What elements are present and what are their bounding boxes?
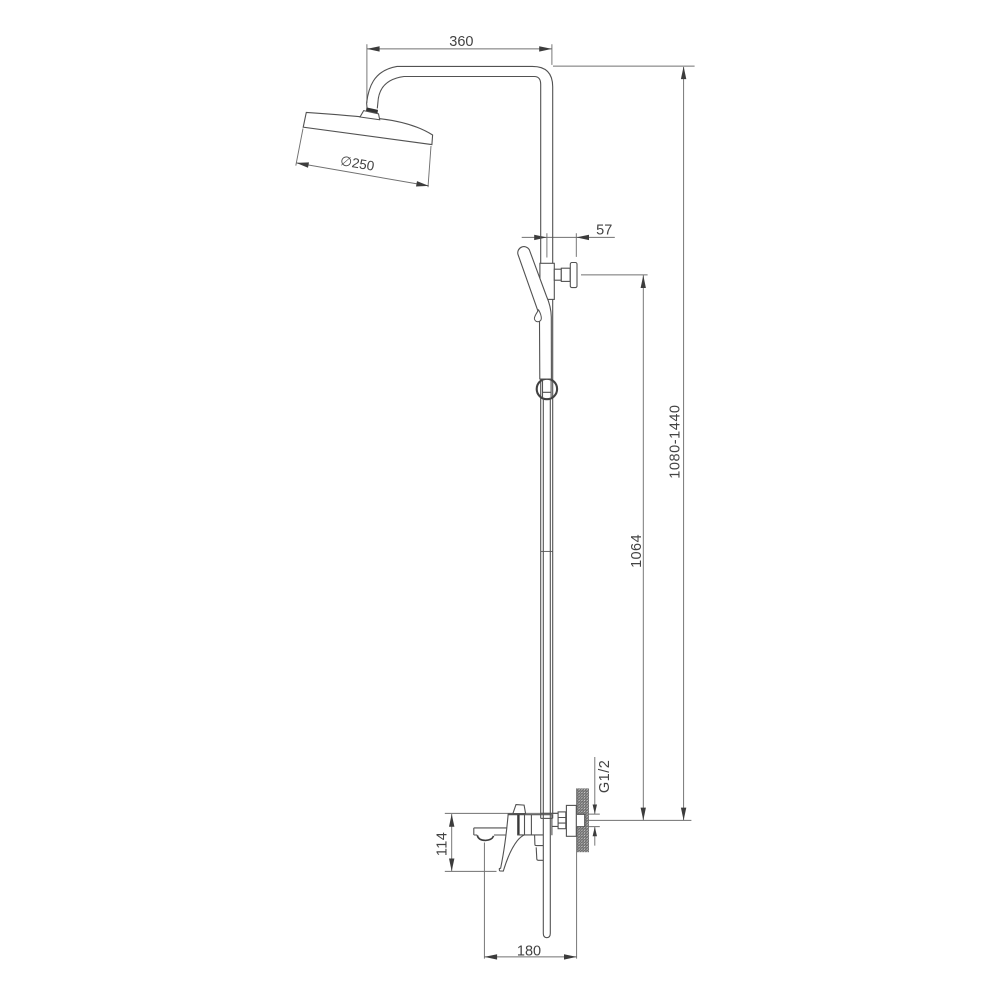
svg-text:1064: 1064	[629, 534, 645, 568]
svg-text:360: 360	[449, 34, 473, 50]
svg-text:57: 57	[596, 223, 612, 239]
svg-text:114: 114	[434, 832, 450, 856]
svg-text:∅250: ∅250	[339, 153, 375, 174]
svg-text:180: 180	[517, 943, 541, 959]
svg-text:1080-1440: 1080-1440	[667, 404, 683, 478]
svg-text:G1/2: G1/2	[597, 760, 613, 793]
